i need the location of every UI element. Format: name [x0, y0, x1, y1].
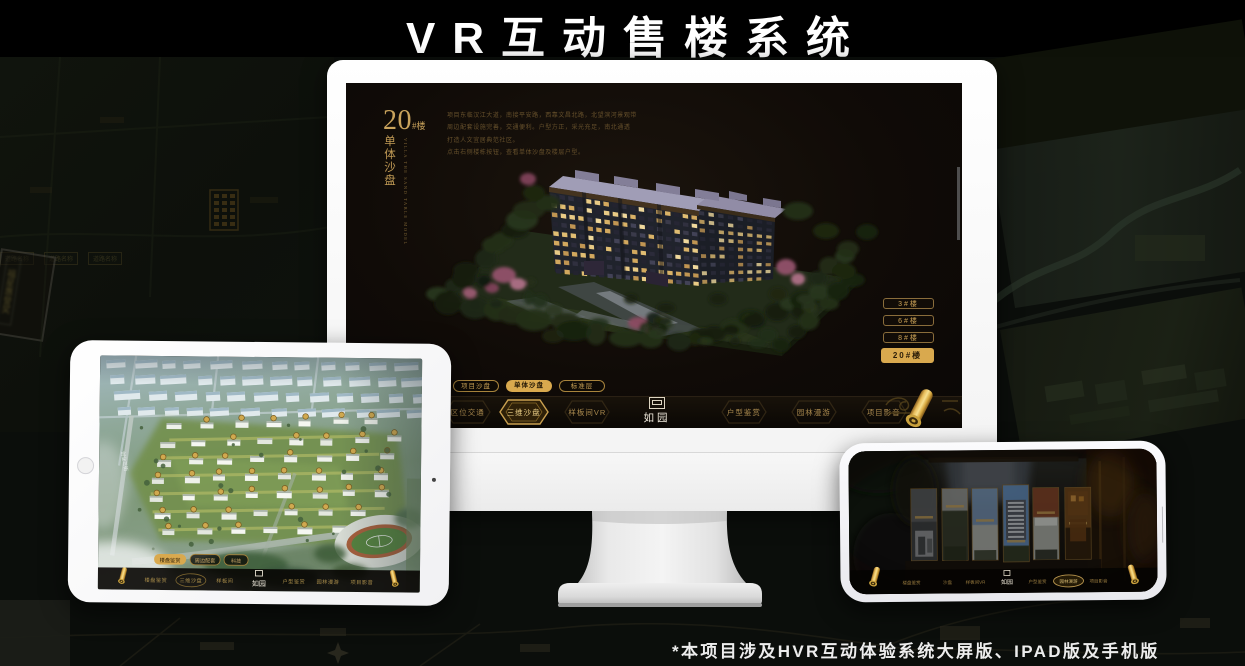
svg-text:沙盘: 沙盘 — [943, 579, 953, 585]
svg-text:园林漫游: 园林漫游 — [316, 578, 339, 586]
svg-text:楼盘鉴赏: 楼盘鉴赏 — [144, 576, 167, 584]
svg-text:项目影音: 项目影音 — [350, 578, 373, 586]
svg-text:科技: 科技 — [231, 557, 241, 565]
svg-text:三维沙盘: 三维沙盘 — [179, 576, 202, 584]
svg-text:户型鉴赏: 户型鉴赏 — [282, 577, 305, 585]
svg-text:楼盘鉴赏: 楼盘鉴赏 — [160, 556, 181, 564]
svg-text:周边配套: 周边配套 — [195, 556, 217, 564]
svg-text:样板间: 样板间 — [216, 577, 233, 585]
svg-text:如园: 如园 — [1001, 578, 1013, 586]
svg-text:如园: 如园 — [252, 579, 266, 588]
